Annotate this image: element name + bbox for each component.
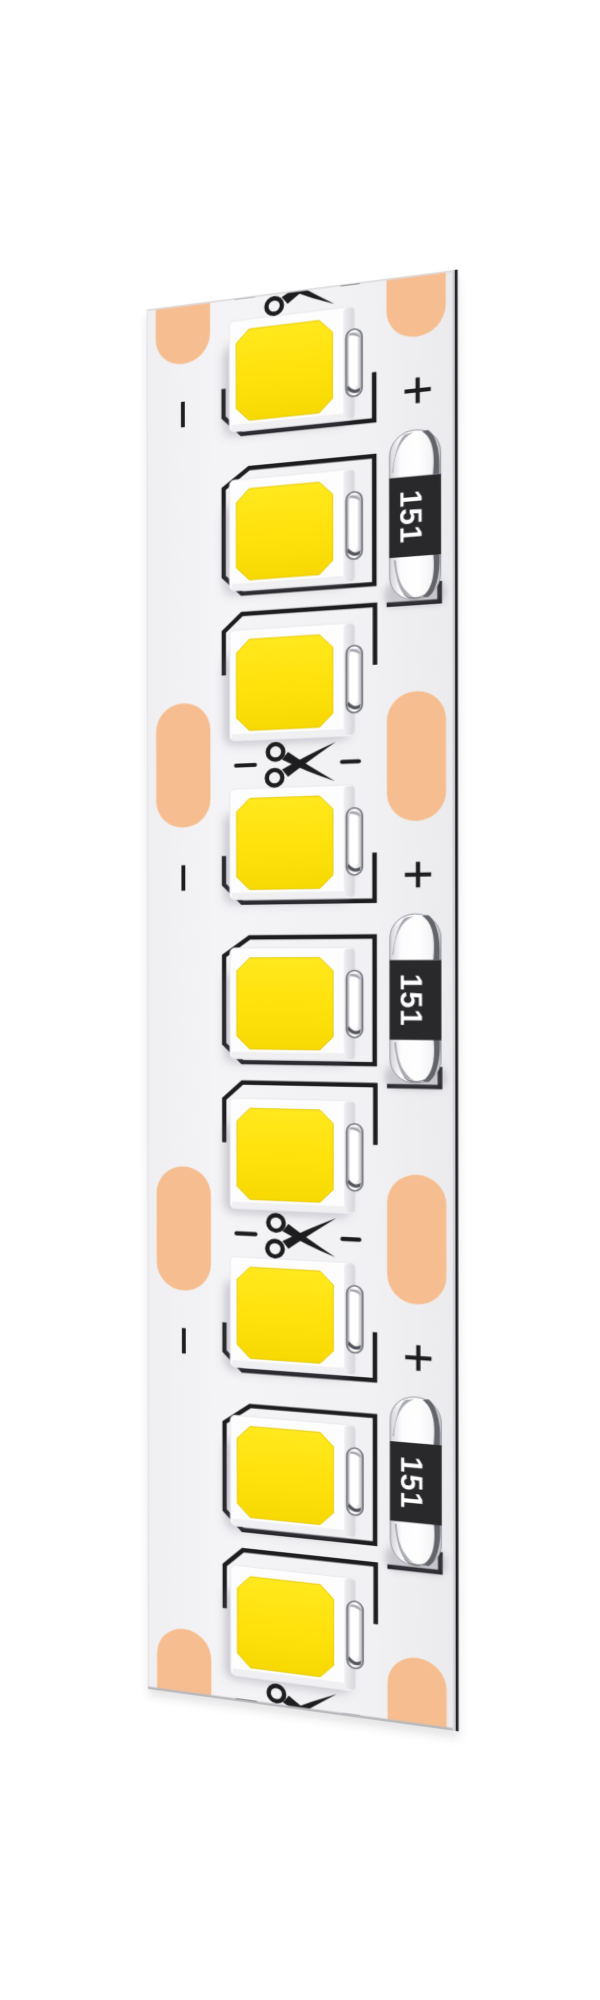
- svg-text:151: 151: [394, 974, 429, 1027]
- svg-text:151: 151: [395, 1455, 430, 1511]
- svg-text:151: 151: [394, 489, 429, 545]
